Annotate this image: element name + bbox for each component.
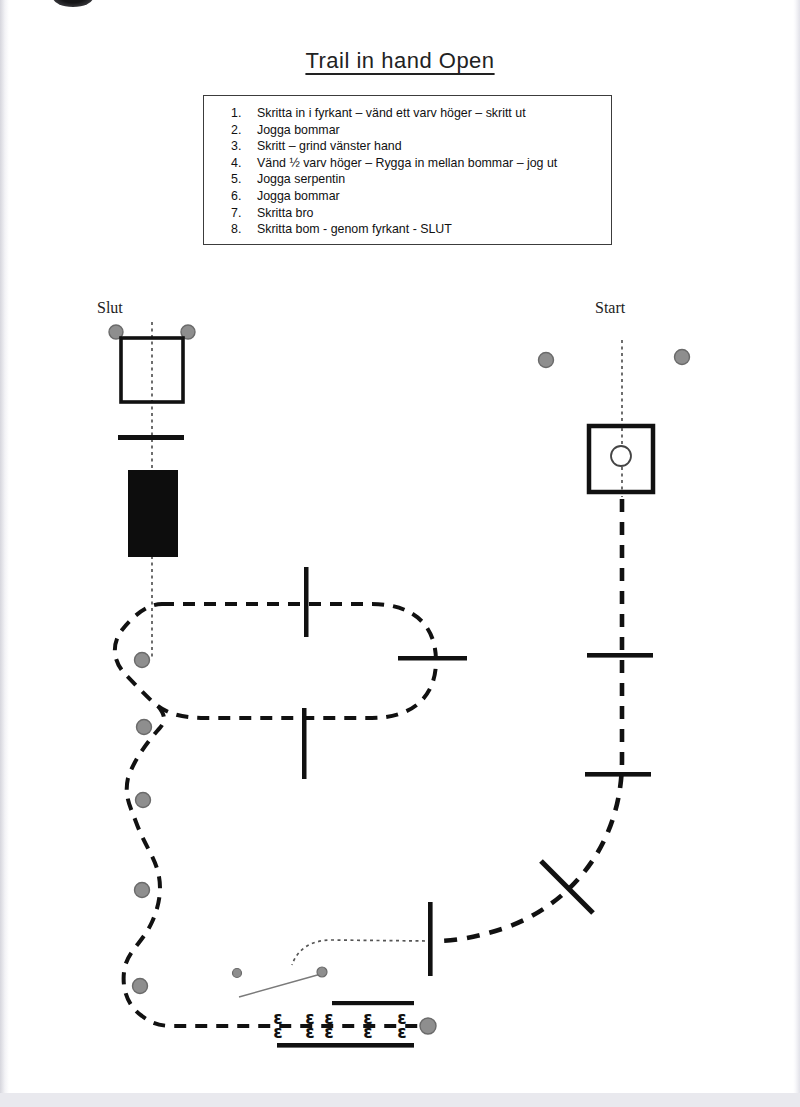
jog-pole-2 (585, 772, 651, 777)
backup-pole-bottom (277, 1043, 414, 1048)
jog-oval-path (115, 604, 436, 718)
serpentine-cone-1 (135, 653, 150, 668)
serpentine-cone-2 (137, 720, 152, 735)
oval-pole-top (304, 567, 309, 637)
serpentine-cone-3 (136, 793, 151, 808)
jog-pole-1 (587, 653, 653, 658)
gate-obstacle (233, 967, 328, 997)
gate-post-right (317, 967, 327, 977)
start-square-obstacle (589, 426, 653, 492)
gate-bar (239, 974, 321, 997)
walk-over-pole (118, 435, 184, 440)
hoofprint-icon: ɛ (305, 1022, 314, 1042)
serpentine-path (124, 706, 420, 1026)
backup-pole-top (332, 1001, 414, 1005)
serpentine-cone-4 (135, 883, 150, 898)
turn-marker-circle (611, 446, 631, 466)
bridge-obstacle (128, 470, 178, 557)
course-end-cone (420, 1018, 436, 1034)
gate-post-left (233, 969, 242, 978)
start-jog-path (436, 499, 622, 941)
oval-pole-right (398, 656, 467, 661)
hoofprint-icon: ɛ (273, 1022, 282, 1042)
gate-walk-path (292, 940, 425, 965)
document-page: Trail in hand Open 1. Skritta in i fyrka… (0, 0, 800, 1107)
hoofprint-icon: ɛ (363, 1022, 372, 1042)
jog-pole-vertical (428, 902, 433, 976)
serpentine-cone-5 (133, 979, 148, 994)
hoofprint-icon: ɛ (324, 1022, 333, 1042)
start-cone-left (539, 353, 554, 368)
course-diagram: ɛ ɛ ɛ ɛ ɛ ɛ ɛ ɛ ɛ ɛ (0, 0, 800, 1107)
start-cone-right (675, 350, 690, 365)
oval-pole-bottom (302, 708, 307, 779)
hoofprint-icon: ɛ (397, 1022, 406, 1042)
